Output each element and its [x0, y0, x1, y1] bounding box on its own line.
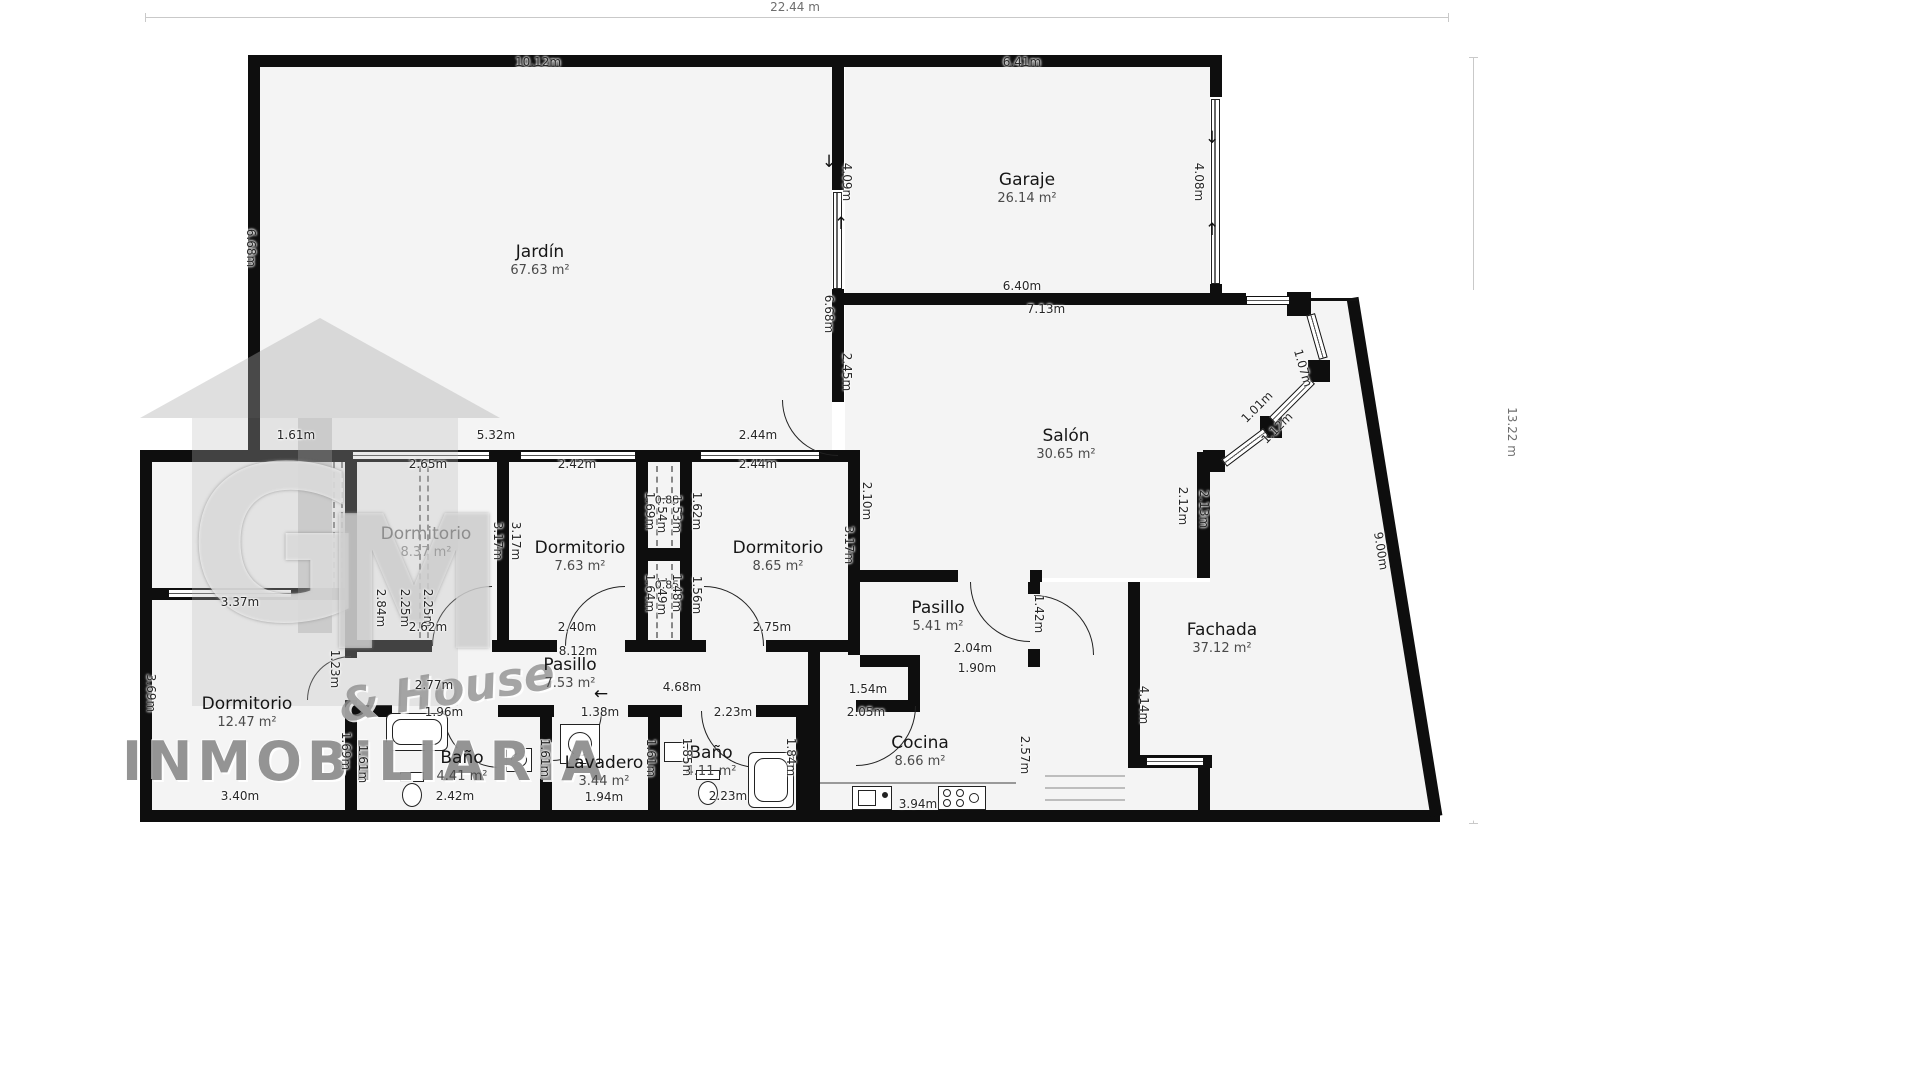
dimension-label: 4.14m — [1137, 686, 1151, 724]
burner — [956, 799, 964, 807]
dimension-label: 2.42m — [436, 789, 474, 803]
dimension-label: 1.69m — [339, 732, 353, 770]
sliding-door — [833, 192, 842, 289]
room-area: 26.14 m² — [997, 191, 1056, 206]
room-area: 7.63 m² — [535, 559, 626, 574]
room-label-dormitorio: Dormitorio7.63 m² — [535, 538, 626, 574]
dimension-label: 3.17m — [491, 522, 505, 560]
floor-plan: G M & House INMOBILIARIA Jardín67.63 m²G… — [0, 0, 1920, 1080]
wall-dorm2-right — [636, 462, 648, 652]
dimension-label: 6.68m — [244, 229, 258, 267]
room-name: Baño — [437, 748, 488, 768]
wall-dorm1-bottom-l — [345, 640, 432, 652]
room-name: Fachada — [1187, 620, 1257, 640]
sliding-door — [1211, 99, 1220, 284]
dimension-label: 2.65m — [409, 457, 447, 471]
dimension-tick — [145, 13, 146, 22]
entrance-steps — [1045, 787, 1125, 789]
room-area: 67.63 m² — [510, 263, 569, 278]
wall-dorm1-left — [345, 462, 357, 652]
dimension-label: 1.61m — [356, 745, 370, 783]
terrace-dashed-line — [333, 462, 335, 588]
room-label-cocina: Cocina8.66 m² — [891, 733, 949, 769]
terrace-dashed-line — [341, 462, 343, 588]
wall-closet-right — [680, 462, 692, 652]
dimension-label: 2.84m — [374, 589, 388, 627]
room-name: Jardín — [510, 242, 569, 262]
dimension-label: 2.23m — [709, 789, 747, 803]
room-name: Cocina — [891, 733, 949, 753]
window-entrance — [1146, 757, 1204, 766]
dimension-tick — [1448, 13, 1449, 22]
bay-corner — [1287, 292, 1311, 316]
dimension-label: 2.05m — [847, 705, 885, 719]
dimension-label: 3.37m — [221, 595, 259, 609]
dimension-label: 1.94m — [585, 790, 623, 804]
room-area: 37.12 m² — [1187, 641, 1257, 656]
wall-entrance-vert — [1128, 582, 1140, 768]
burner — [969, 793, 979, 803]
room-area: 8.66 m² — [891, 754, 949, 769]
toilet-icon — [402, 783, 422, 807]
dimension-label: 1.54m — [849, 682, 887, 696]
dimension-label: 1.23m — [328, 650, 342, 688]
dimension-label: 1.61m — [538, 739, 552, 777]
wall-salon-bottom-right — [1030, 570, 1042, 582]
dimension-label: 2.75m — [753, 620, 791, 634]
room-label-pasillo: Pasillo7.53 m² — [543, 655, 596, 691]
room-label-pasillo: Pasillo5.41 m² — [911, 598, 964, 634]
entrance-steps — [1045, 775, 1125, 777]
toilet-tank — [400, 772, 424, 782]
room-label-dormitorio: Dormitorio8.65 m² — [733, 538, 824, 574]
wall-salon-bottom-left — [848, 570, 958, 582]
dimension-label: 3.69m — [144, 674, 158, 712]
bathtub-inner — [754, 758, 788, 802]
dimension-label: 1.85m — [680, 738, 694, 776]
dimension-label: 4.09m — [840, 163, 854, 201]
room-label-dormitorio: Dormitorio12.47 m² — [202, 694, 293, 730]
sink-bowl — [511, 753, 527, 767]
room-area: 8.37 m² — [381, 545, 472, 560]
dimension-label: 2.44m — [739, 457, 777, 471]
room-name: Dormitorio — [381, 524, 472, 544]
dimension-label: 22.44 m — [770, 0, 820, 14]
room-label-lavadero: Lavadero3.44 m² — [565, 753, 644, 789]
dimension-label: 2.40m — [558, 620, 596, 634]
dimension-label: 1.84m — [784, 738, 798, 776]
room-name: Pasillo — [543, 655, 596, 675]
room-label-ba-o: Baño4.41 m² — [437, 748, 488, 784]
dimension-label: 2.77m — [415, 678, 453, 692]
dimension-label: 3.17m — [842, 526, 856, 564]
dimension-line-top — [145, 17, 1448, 18]
dimension-tick — [1469, 823, 1478, 824]
room-label-fachada: Fachada37.12 m² — [1187, 620, 1257, 656]
wall-closet-mid — [648, 548, 680, 561]
dimension-label: 1.90m — [958, 661, 996, 675]
room-label-sal-n: Salón30.65 m² — [1036, 426, 1095, 462]
wall-garaje-right-upper — [1210, 55, 1222, 97]
dimension-label: 1.96m — [425, 705, 463, 719]
dimension-label: 6.68m — [822, 295, 836, 333]
direction-arrow-icon: ↑ — [834, 214, 848, 234]
room-area: 7.53 m² — [543, 676, 596, 691]
dimension-label: 2.45m — [840, 353, 854, 391]
dimension-label: 1.61m — [277, 428, 315, 442]
dimension-label: 1.56m — [690, 576, 704, 614]
direction-arrow-icon: ↑ — [1205, 220, 1219, 240]
dimension-label: 1.62m — [690, 492, 704, 530]
dimension-label: 2.42m — [558, 457, 596, 471]
dimension-label: 1.53m — [670, 495, 684, 533]
dimension-label: 2.62m — [409, 620, 447, 634]
direction-arrow-icon: ← — [594, 684, 608, 704]
room-label-jard-n: Jardín67.63 m² — [510, 242, 569, 278]
entrance-steps — [1045, 799, 1125, 801]
dimension-label: 2.04m — [954, 641, 992, 655]
room-area: 30.65 m² — [1036, 447, 1095, 462]
room-name: Dormitorio — [733, 538, 824, 558]
wall-entrance-vert2 — [1198, 768, 1210, 822]
dimension-label: 1.61m — [644, 739, 658, 777]
room-area: 5.41 m² — [911, 619, 964, 634]
dimension-label: 3.94m — [899, 797, 937, 811]
burner — [943, 799, 951, 807]
wall-outer-left — [140, 450, 152, 822]
dimension-label: 2.13m — [1197, 490, 1211, 528]
dimension-label: 10.12m — [515, 55, 561, 69]
room-area: 8.65 m² — [733, 559, 824, 574]
faucet-dot — [882, 792, 888, 798]
wall-outer-top — [248, 55, 1222, 67]
room-name: Pasillo — [911, 598, 964, 618]
dimension-label: 4.68m — [663, 680, 701, 694]
kitchen-counter — [820, 782, 1016, 784]
dimension-label: 5.32m — [477, 428, 515, 442]
direction-arrow-icon: ↓ — [1205, 128, 1219, 148]
room-label-garaje: Garaje26.14 m² — [997, 170, 1056, 206]
room-name: Salón — [1036, 426, 1095, 446]
wall-pasillo-right — [808, 645, 820, 810]
room-area: 3.44 m² — [565, 774, 644, 789]
dimension-label: 2.12m — [1176, 487, 1190, 525]
dimension-tick — [1469, 57, 1478, 58]
dimension-label: 2.44m — [739, 428, 777, 442]
room-label-dormitorio: Dormitorio8.37 m² — [381, 524, 472, 560]
direction-arrow-icon: ↓ — [822, 152, 836, 172]
room-name: Garaje — [997, 170, 1056, 190]
dimension-label: 2.23m — [714, 705, 752, 719]
dimension-label: 3.40m — [221, 789, 259, 803]
wall-dorm1-bottom-r — [492, 640, 557, 652]
wall-pasillo2-bottom — [860, 655, 920, 667]
dimension-label: 6.41m — [1003, 55, 1041, 69]
room-area: 4.41 m² — [437, 769, 488, 784]
kitchen-sink-bowl — [858, 790, 876, 806]
wall-dorm2-bottom-r — [625, 640, 692, 652]
dimension-label: 13.22 m — [1505, 407, 1519, 457]
dimension-label: 1.42m — [1032, 595, 1046, 633]
dimension-label: 2.10m — [860, 482, 874, 520]
room-name: Dormitorio — [535, 538, 626, 558]
dimension-label: 2.57m — [1018, 736, 1032, 774]
dimension-label: 1.48m — [670, 574, 684, 612]
dimension-label: 6.40m — [1003, 279, 1041, 293]
fachada-area-lower — [1128, 582, 1430, 816]
dimension-label: 1.38m — [581, 705, 619, 719]
wall-outer-bottom — [140, 810, 1440, 822]
dimension-label: 4.08m — [1192, 163, 1206, 201]
room-name: Lavadero — [565, 753, 644, 773]
room-area: 12.47 m² — [202, 715, 293, 730]
room-name: Dormitorio — [202, 694, 293, 714]
dimension-label: 7.13m — [1027, 302, 1065, 316]
dimension-label: 8.12m — [559, 644, 597, 658]
bathtub-inner — [392, 719, 442, 745]
burner — [943, 789, 951, 797]
bay-window — [1246, 296, 1290, 305]
dimension-label: 3.17m — [509, 522, 523, 560]
burner — [956, 789, 964, 797]
